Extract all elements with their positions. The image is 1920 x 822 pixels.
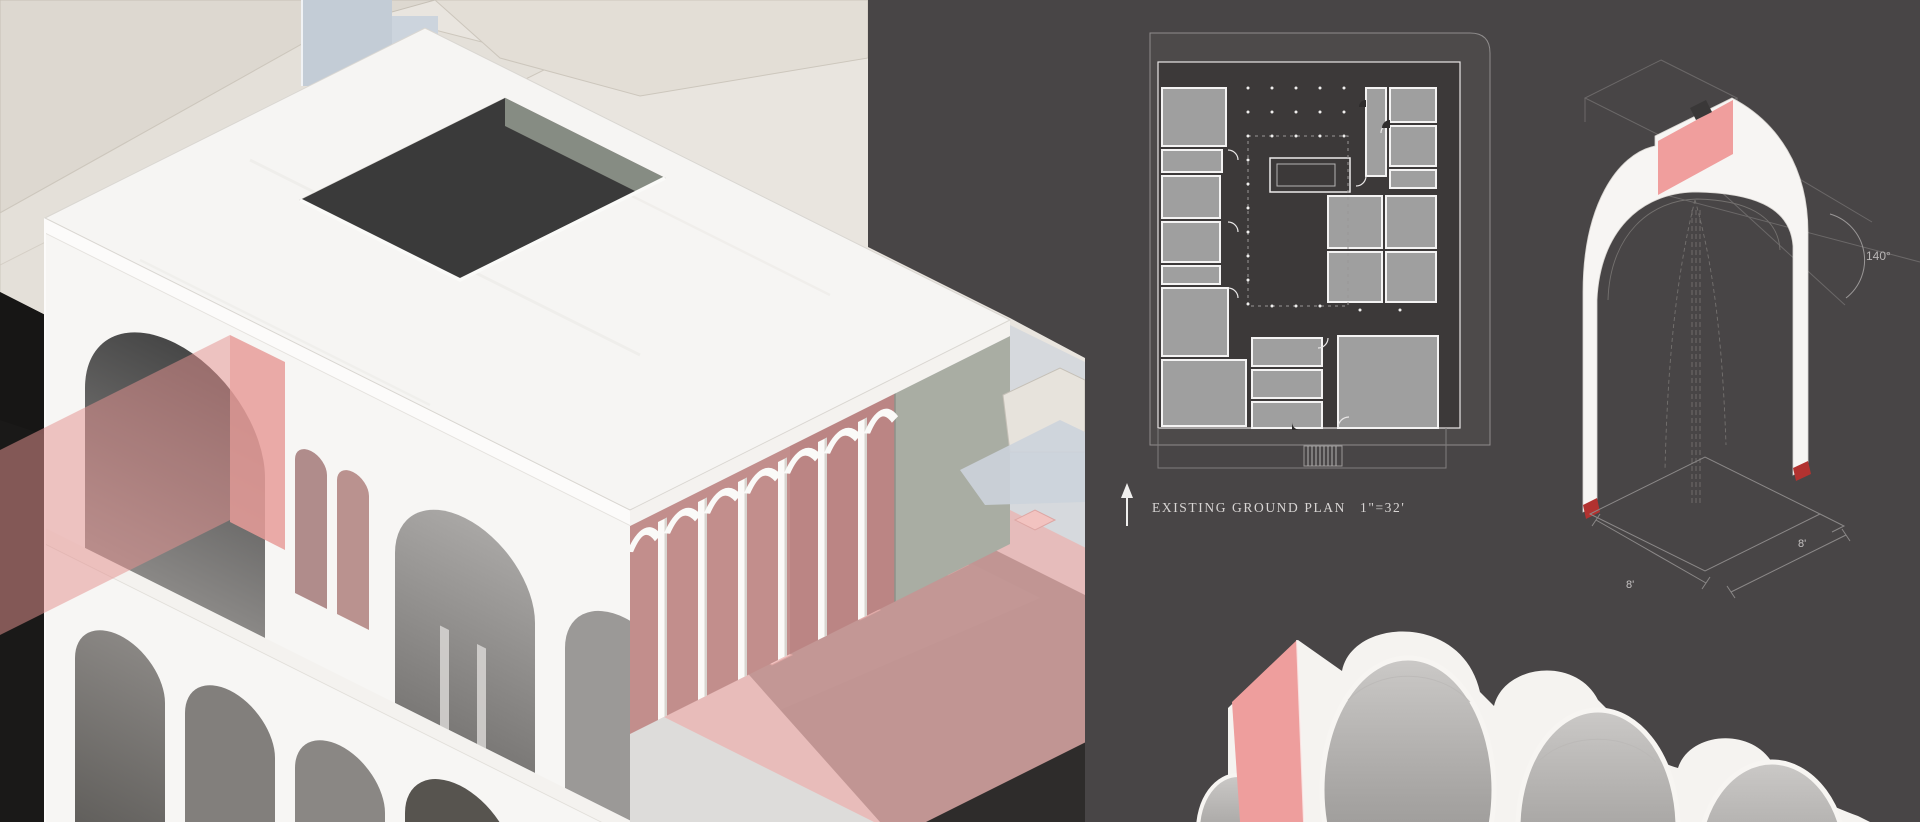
presentation-panel: EXISTING GROUND PLAN1"=32' [1085, 0, 1920, 822]
beam-end-face [230, 335, 285, 550]
dimension-label-left: 8' [1626, 579, 1634, 591]
plan-caption-title: EXISTING GROUND PLAN [1152, 500, 1346, 515]
plan-caption: EXISTING GROUND PLAN1"=32' [1152, 500, 1405, 515]
board-canvas: EXISTING GROUND PLAN1"=32' [0, 0, 1920, 822]
angle-annotation: 140° [1866, 249, 1891, 263]
architecture-presentation-board: EXISTING GROUND PLAN1"=32' [0, 0, 1920, 822]
dimension-label-right: 8' [1798, 538, 1806, 550]
plan-caption-scale: 1"=32' [1360, 500, 1405, 515]
